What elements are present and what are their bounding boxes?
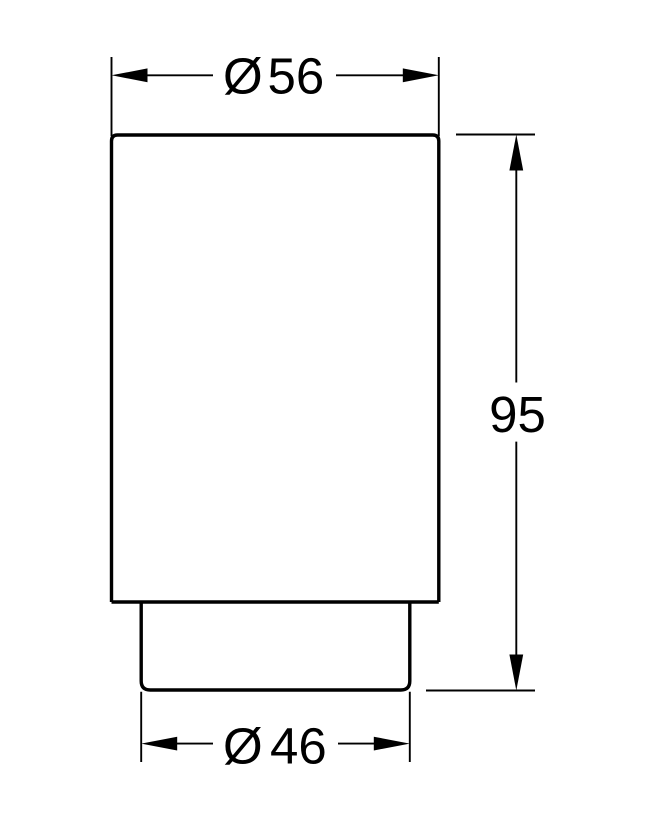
svg-text:Ø: Ø — [223, 717, 263, 774]
svg-text:46: 46 — [270, 717, 327, 774]
svg-text:56: 56 — [268, 48, 325, 105]
svg-text:95: 95 — [489, 386, 546, 443]
svg-text:Ø: Ø — [223, 48, 263, 105]
